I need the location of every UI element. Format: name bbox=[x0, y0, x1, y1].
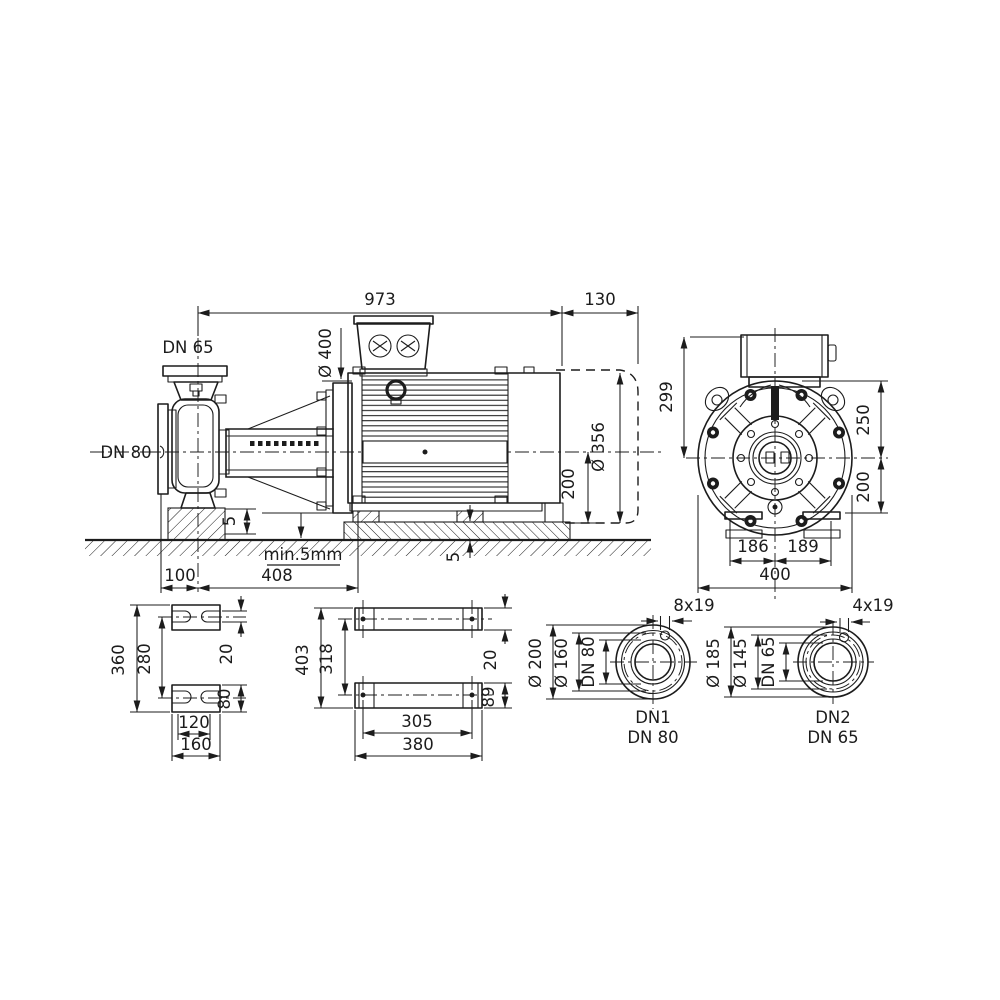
dim-upper-half: 250 bbox=[854, 404, 873, 436]
dim-dn1-boltcircle: Ø 160 bbox=[552, 638, 571, 688]
lifting-lug-icon bbox=[701, 383, 734, 416]
pump-foot-plan: 360 280 20 80 120 160 bbox=[109, 596, 247, 761]
label-discharge-port: DN 65 bbox=[162, 338, 213, 357]
dim-overall-width: 400 bbox=[759, 565, 791, 584]
flange-dn1: 8x19 Ø 200 Ø 160 DN 80 DN1 DN 80 bbox=[526, 596, 715, 747]
dim-motorfoot-pad: 89 bbox=[479, 687, 498, 708]
pump-foot-dimensions: 360 280 20 80 120 160 bbox=[109, 596, 247, 761]
terminal-screw-icon bbox=[397, 335, 419, 357]
dim-pumpfoot-holespan: 120 bbox=[178, 713, 210, 732]
dim-foot-pad-height: 5 bbox=[444, 552, 463, 563]
dim-shaft-height: 200 bbox=[559, 468, 578, 500]
lifting-lug-icon bbox=[817, 383, 850, 416]
label-dn2-size: DN 65 bbox=[807, 728, 858, 747]
dim-motorfoot-pitch: 318 bbox=[317, 643, 336, 675]
dim-dn1-boltholes: 8x19 bbox=[673, 596, 714, 615]
dim-motorfoot-overall: 403 bbox=[293, 644, 312, 676]
dim-dn1-od: Ø 200 bbox=[526, 638, 545, 688]
dim-dn1-bore: DN 80 bbox=[579, 636, 598, 687]
dim-extension-length: 130 bbox=[584, 290, 616, 309]
dim-suction-offset: 100 bbox=[164, 566, 196, 585]
terminal-box bbox=[354, 316, 433, 376]
dim-foot-left: 186 bbox=[737, 537, 769, 556]
dim-dn2-boltholes: 4x19 bbox=[852, 596, 893, 615]
terminal-screw-icon bbox=[369, 335, 391, 357]
dim-motorfoot-slot: 20 bbox=[481, 650, 500, 671]
dim-motorfoot-width: 380 bbox=[402, 735, 434, 754]
dim-foot-right: 189 bbox=[787, 537, 819, 556]
side-view: 973 130 DN 65 Ø 400 DN 80 Ø 356 200 5 5 bbox=[85, 290, 662, 593]
dim-pumpfoot-slot: 20 bbox=[217, 644, 236, 665]
front-view-dimensions: 299 250 200 186 189 400 bbox=[657, 337, 888, 593]
front-view: 299 250 200 186 189 400 bbox=[657, 328, 888, 600]
dim-dn2-od: Ø 185 bbox=[704, 638, 723, 688]
motor bbox=[317, 316, 638, 523]
dim-motorfoot-holespan: 305 bbox=[401, 712, 433, 731]
dim-height-to-box: 299 bbox=[657, 381, 676, 413]
dim-pad-height: 5 bbox=[220, 516, 239, 527]
dim-foot-distance: 408 bbox=[261, 566, 293, 585]
label-suction-port: DN 80 bbox=[100, 443, 151, 462]
dim-pumpfoot-width: 160 bbox=[180, 735, 212, 754]
label-dn2-id: DN2 bbox=[815, 708, 851, 727]
flange-dn2: 4x19 Ø 185 Ø 145 DN 65 DN2 DN 65 bbox=[704, 596, 894, 747]
bearing-bracket bbox=[226, 396, 333, 509]
dim-dn2-boltcircle: Ø 145 bbox=[731, 638, 750, 688]
dim-dn2-bore: DN 65 bbox=[759, 636, 778, 687]
pump-casing bbox=[158, 366, 229, 508]
label-dn1-id: DN1 bbox=[635, 708, 671, 727]
dim-pumpfoot-pitch: 280 bbox=[135, 643, 154, 675]
dim-pumpfoot-pad: 80 bbox=[215, 689, 234, 710]
pump-dimension-drawing: 973 130 DN 65 Ø 400 DN 80 Ø 356 200 5 5 bbox=[0, 0, 1000, 1000]
dim-overall-length: 973 bbox=[364, 290, 396, 309]
dim-lower-half: 200 bbox=[854, 471, 873, 503]
motor-foot-plan: 403 318 20 89 305 380 bbox=[293, 594, 512, 761]
note-grout: min.5mm bbox=[263, 545, 342, 564]
dim-pumpfoot-overall: 360 bbox=[109, 644, 128, 676]
dim-flange-diameter: Ø 400 bbox=[316, 328, 335, 378]
dim-motor-diameter: Ø 356 bbox=[589, 422, 608, 472]
label-dn1-size: DN 80 bbox=[627, 728, 678, 747]
motor-foot-dimensions: 403 318 20 89 305 380 bbox=[293, 594, 512, 761]
technical-drawing-page: 973 130 DN 65 Ø 400 DN 80 Ø 356 200 5 5 bbox=[0, 0, 1000, 1000]
